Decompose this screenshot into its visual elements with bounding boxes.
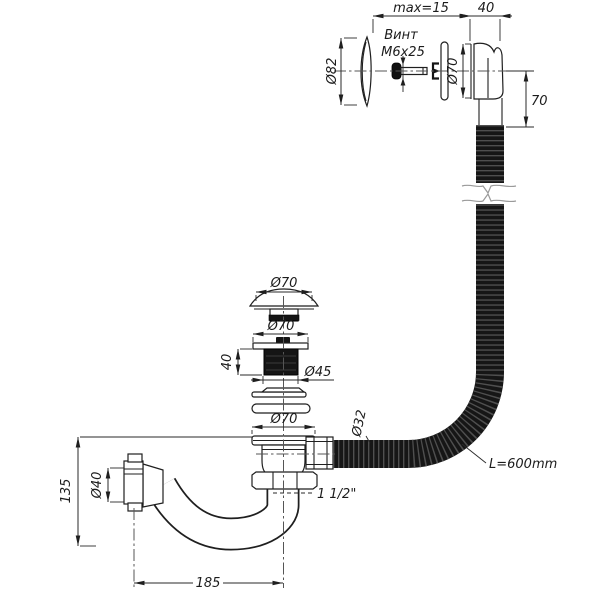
- label-flange-depth: 40: [478, 1, 495, 16]
- label-drain-flange-dia: Ø70: [270, 412, 298, 427]
- label-plug-dia: Ø70: [267, 319, 295, 334]
- label-trap-height: 135: [59, 479, 74, 504]
- label-trap-nut-dia: Ø40: [90, 472, 105, 500]
- plug-top-plate: [253, 343, 308, 349]
- tee-lock-nut: [252, 472, 317, 489]
- strainer-washer-base: [252, 392, 306, 397]
- label-core-dia: Ø45: [304, 365, 332, 380]
- label-plug-height: 40: [220, 354, 235, 371]
- label-hose-length: L=600mm: [489, 457, 557, 472]
- trap-nut-body: [124, 461, 143, 504]
- trap-inlet-cone: [143, 464, 163, 507]
- drawing-sheet: max=15 40 Винт М6х25 Ø82 Ø70 70 Ø70 Ø70 …: [0, 0, 600, 600]
- label-trap-length: 185: [196, 576, 221, 591]
- label-outlet-offset: 70: [531, 94, 548, 109]
- overflow-screw: [392, 56, 439, 92]
- technical-drawing: max=15 40 Винт М6х25 Ø82 Ø70 70 Ø70 Ø70 …: [0, 0, 600, 600]
- label-cover-plate-dia: Ø82: [325, 58, 340, 86]
- label-clamp-range: max=15: [393, 1, 449, 16]
- label-thread-size: 1 1/2": [317, 487, 356, 502]
- label-screw-size: М6х25: [381, 45, 425, 60]
- trap-nut-top-collar: [128, 454, 142, 462]
- label-overflow-body-dia: Ø70: [446, 58, 461, 86]
- label-cap-dia: Ø70: [270, 276, 298, 291]
- p-trap: [124, 454, 283, 534]
- trap-nut-bottom-collar: [128, 503, 142, 511]
- leader-hose-length: [462, 444, 486, 463]
- plug-rubber-block: [264, 349, 298, 375]
- hose-break-line-top: [462, 185, 516, 193]
- waste-tee: [252, 436, 333, 489]
- hose-break-line-bottom: [462, 194, 516, 202]
- overflow-hose: [333, 98, 516, 454]
- overflow-spigot: [479, 98, 502, 125]
- label-hose-dia: Ø32: [349, 409, 369, 439]
- label-screw-name: Винт: [384, 28, 418, 43]
- screw-axis-arrow-bottom: [401, 78, 406, 86]
